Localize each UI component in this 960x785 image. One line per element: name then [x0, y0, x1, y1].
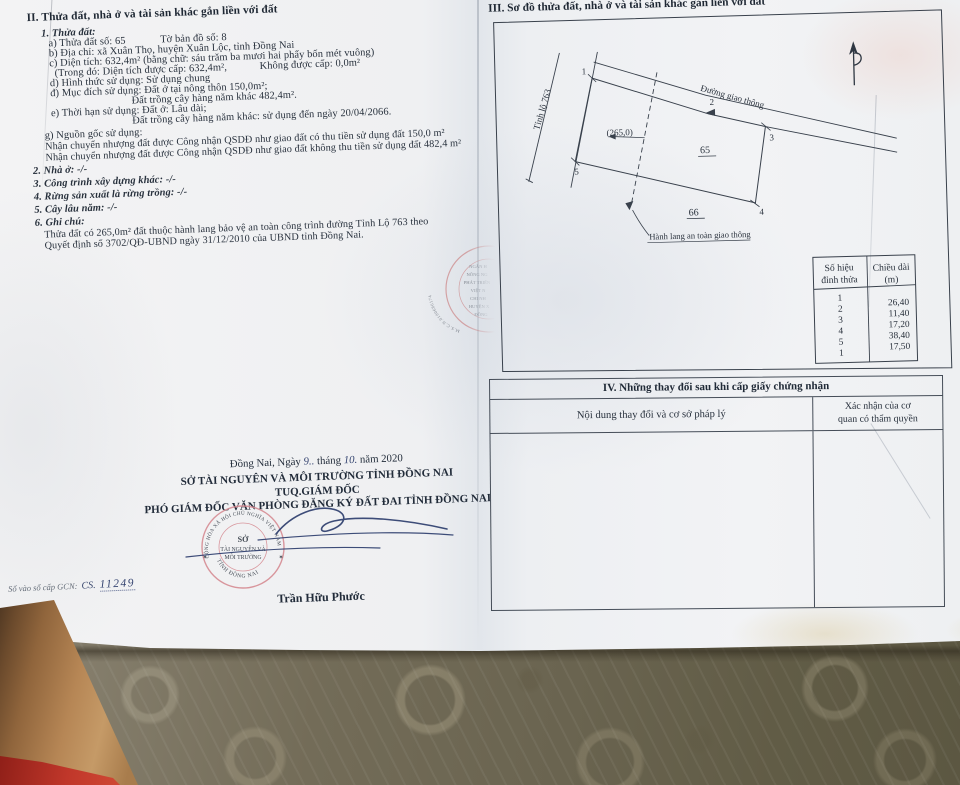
bank-stamp-arc-text: M.S.C.N.0100686174 — [428, 294, 460, 334]
gcn-number-handwritten: 11249 — [99, 577, 135, 592]
section4-column-divider — [812, 431, 815, 607]
date-year: năm 2020 — [360, 452, 403, 465]
vertex-ticks — [569, 69, 773, 211]
seal-center-3: MÔI TRƯỜNG — [224, 553, 261, 561]
edge-length: 11,40 — [888, 309, 909, 320]
vertex-id: 2 — [838, 305, 843, 315]
vertex-label-5: 5 — [574, 166, 579, 176]
diagram-frame — [494, 10, 952, 380]
road-top-lines — [594, 54, 897, 160]
vertex-label-3: 3 — [769, 132, 774, 142]
section4-col1-header: Nội dung thay đổi và cơ sở pháp lý — [490, 397, 813, 433]
corridor-dashed-line — [622, 72, 661, 236]
section4-col2-line1: Xác nhận của cơ — [813, 399, 942, 413]
section4-col2-line2: quan có thẩm quyền — [813, 412, 942, 426]
date-prefix: Đồng Nai, Ngày — [230, 456, 301, 470]
vertex-id: 5 — [839, 338, 844, 348]
vertex-label-1: 1 — [582, 66, 587, 76]
bank-stamp-line: VIỆT N — [471, 288, 487, 293]
vertex-label-4: 4 — [759, 207, 764, 217]
seal-center-1: SỞ — [238, 534, 249, 544]
vertex-table-header-2a: Chiều dài — [872, 262, 910, 274]
item2-house: 2. Nhà ở: -/- — [33, 164, 88, 177]
seal-and-signature: CỘNG HÒA XÃ HỘI CHỦ NGHĨA VIỆT NAM TỈNH … — [150, 480, 480, 620]
edge-length: 38,40 — [889, 331, 911, 342]
section2-title: II. Thửa đất, nhà ở và tài sản khác gắn … — [26, 3, 277, 24]
gcn-label: Số vào sổ cấp GCN: — [8, 581, 78, 594]
bank-stamp-line: CHI NH — [470, 296, 486, 301]
vertex2-arrow-icon — [705, 109, 715, 116]
vertex-label-2: 2 — [709, 97, 714, 107]
gcn-code: CS. — [81, 580, 96, 592]
section4-empty-body — [489, 430, 945, 611]
seal-text: CỘNG HÒA XÃ HỘI CHỦ NGHĨA VIỆT NAM TỈNH … — [202, 509, 284, 580]
road-left-label: Tỉnh lộ 763 — [531, 87, 553, 131]
section4-table: IV. Những thay đổi sau khi cấp giấy chứn… — [489, 375, 945, 611]
certificate-paper: II. Thửa đất, nhà ở và tài sản khác gắn … — [0, 0, 960, 662]
item6-notes: 6. Ghi chú: — [35, 216, 85, 229]
edge-length: 17,20 — [888, 320, 910, 331]
vertex-table-header-1a: Số hiệu — [824, 262, 854, 274]
parcel-number-65: 65 — [700, 145, 710, 156]
section4-header-row: Nội dung thay đổi và cơ sở pháp lý Xác n… — [489, 396, 943, 434]
section4-col2-header: Xác nhận của cơ quan có thẩm quyền — [813, 396, 942, 430]
vertex-table-header-1b: đỉnh thửa — [821, 274, 858, 286]
item5-perennial: 5. Cây lâu năm: -/- — [34, 202, 117, 216]
parcel-number-66: 66 — [689, 207, 699, 218]
vertex-id: 1 — [837, 294, 842, 304]
vertex-table-header-2b: (m) — [884, 274, 898, 285]
date-month-handwritten: 10. — [344, 454, 358, 466]
photographed-land-certificate: II. Thửa đất, nhà ở và tài sản khác gắn … — [0, 0, 960, 785]
date-day-handwritten: 9.. — [303, 455, 314, 467]
north-arrow-icon — [849, 42, 862, 85]
bank-stamp-line: NÔNG NG — [466, 272, 488, 277]
vertex-table: Số hiệu đỉnh thửa Chiều dài (m) 1 2 3 4 … — [813, 255, 918, 364]
parcel-diagram: Tỉnh lộ 763 Đường giao thông — [480, 0, 960, 390]
vertex-id: 3 — [838, 316, 843, 326]
corridor-label: Hành lang an toàn giao thông — [649, 229, 751, 242]
area-not-granted-text: Không được cấp: 0,0m² — [259, 57, 360, 72]
edge-length: 17,50 — [889, 342, 911, 353]
bank-stamp-line: HUYỆN X — [469, 304, 490, 309]
vertex-id: 1 — [839, 349, 844, 359]
svg-text:M.S.C.N.0100686174: M.S.C.N.0100686174 — [428, 294, 460, 334]
vertex-id: 4 — [838, 327, 843, 337]
bank-stamp-line: ĐỒNG — [474, 312, 488, 317]
bank-stamp-line: NGÂN H — [469, 264, 487, 269]
edge-length: 26,40 — [888, 298, 910, 309]
date-mid: tháng — [317, 454, 341, 467]
seal-star-right-icon: ✶ — [278, 554, 283, 561]
